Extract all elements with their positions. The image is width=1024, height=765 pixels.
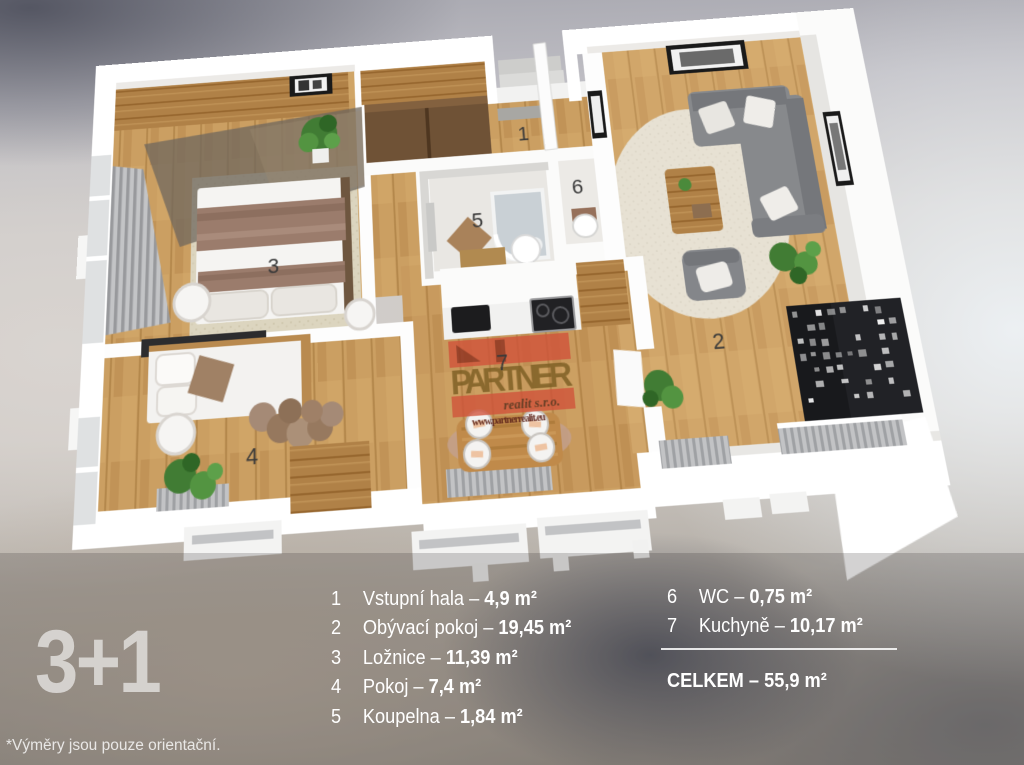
svg-text:3: 3 xyxy=(268,254,280,278)
svg-text:5: 5 xyxy=(471,208,484,232)
svg-text:4: 4 xyxy=(246,443,258,470)
svg-text:7: 7 xyxy=(496,349,510,375)
svg-text:1: 1 xyxy=(517,122,530,145)
svg-text:6: 6 xyxy=(571,175,585,198)
